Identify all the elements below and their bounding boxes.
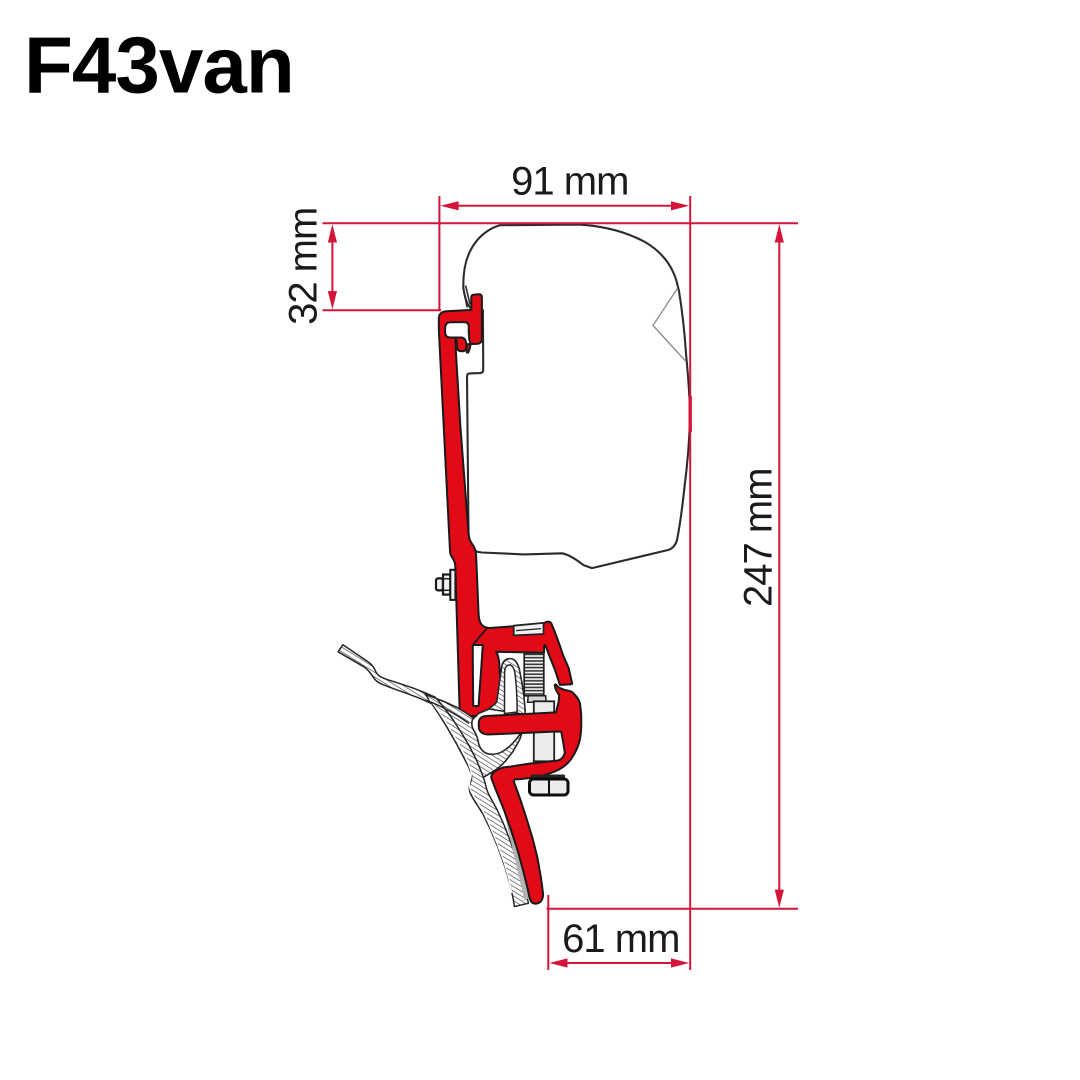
svg-text:F43van: F43van [24,21,294,110]
svg-text:32 mm: 32 mm [282,208,326,325]
svg-text:61 mm: 61 mm [562,917,679,961]
svg-text:91 mm: 91 mm [511,160,628,204]
svg-text:247 mm: 247 mm [737,468,781,607]
